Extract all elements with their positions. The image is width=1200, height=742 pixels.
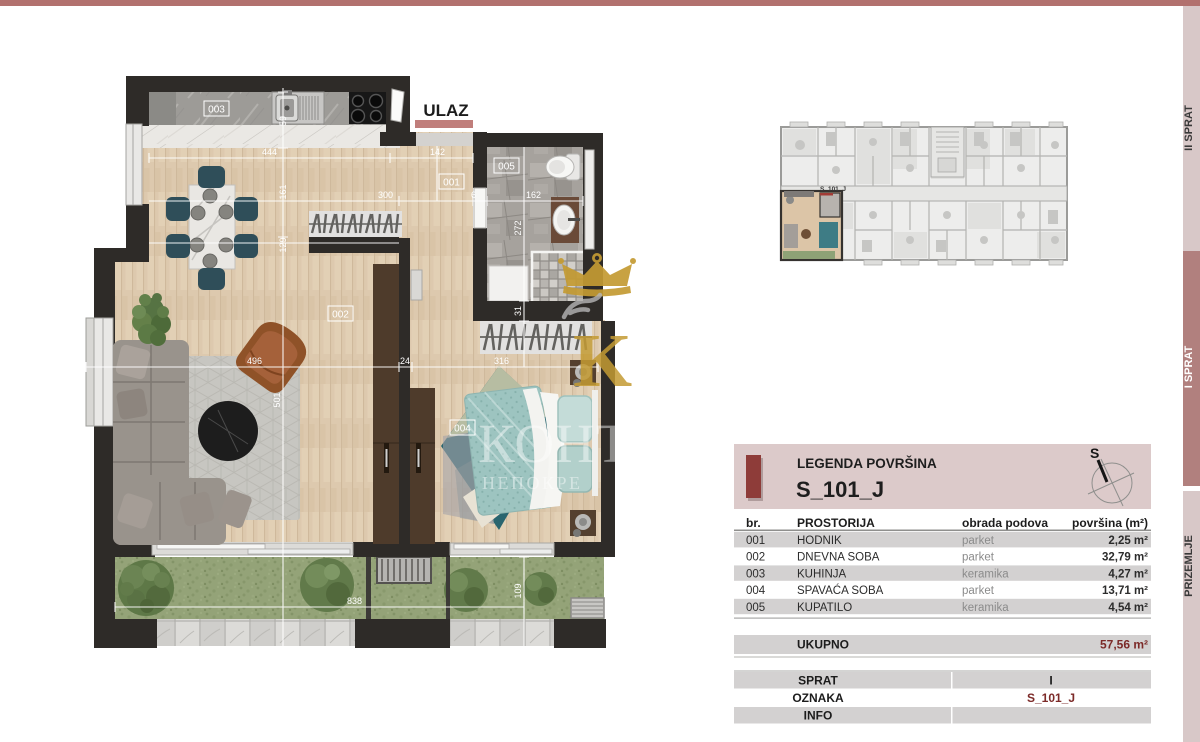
svg-text:parket: parket [962,535,995,547]
svg-text:I SPRAT: I SPRAT [1183,345,1195,388]
svg-text:31: 31 [513,306,523,316]
svg-text:142: 142 [430,147,445,157]
svg-text:002: 002 [746,552,765,564]
svg-text:I: I [1049,674,1052,688]
svg-text:13,71 m²: 13,71 m² [1102,585,1148,597]
svg-text:površina (m²): površina (m²) [1072,516,1148,530]
svg-text:6: 6 [471,190,476,200]
svg-text:272: 272 [513,220,523,235]
svg-text:HODNIK: HODNIK [797,535,842,547]
svg-text:001: 001 [746,535,765,547]
svg-text:005: 005 [746,602,765,614]
svg-text:S: S [1090,445,1099,461]
svg-text:162: 162 [526,190,541,200]
svg-text:КОНТ: КОНТ [478,413,630,474]
svg-text:496: 496 [247,356,262,366]
svg-text:4,54 m²: 4,54 m² [1108,602,1148,614]
svg-text:316: 316 [494,356,509,366]
svg-text:2,25 m²: 2,25 m² [1108,535,1148,547]
svg-text:keramika: keramika [962,568,1009,580]
svg-text:S_101_J: S_101_J [820,186,846,193]
svg-text:br.: br. [746,516,761,530]
svg-text:005: 005 [498,162,515,173]
svg-text:57,56 m²: 57,56 m² [1100,638,1148,652]
svg-text:INFO: INFO [804,709,833,723]
svg-text:K: K [573,319,632,403]
svg-text:002: 002 [332,310,349,321]
svg-text:KUPATILO: KUPATILO [797,602,852,614]
svg-text:32,79 m²: 32,79 m² [1102,552,1148,564]
svg-text:S_101_J: S_101_J [1027,691,1075,705]
svg-text:SPRAT: SPRAT [798,674,838,688]
svg-text:PRIZEMLJE: PRIZEMLJE [1183,535,1195,597]
svg-text:444: 444 [262,147,277,157]
svg-text:838: 838 [347,596,362,606]
svg-text:300: 300 [378,190,393,200]
svg-text:001: 001 [443,178,460,189]
svg-text:keramika: keramika [962,602,1009,614]
svg-text:109: 109 [513,583,523,598]
svg-text:59: 59 [278,116,288,126]
svg-text:004: 004 [746,585,766,597]
svg-text:S_101_J: S_101_J [796,477,884,502]
svg-text:003: 003 [208,105,225,116]
svg-text:SPAVAĆA SOBA: SPAVAĆA SOBA [797,584,884,597]
svg-text:KUHINJA: KUHINJA [797,568,847,580]
svg-text:004: 004 [454,424,471,435]
svg-text:501: 501 [272,392,282,407]
svg-text:161: 161 [278,184,288,199]
svg-text:parket: parket [962,585,995,597]
svg-text:obrada podova: obrada podova [962,516,1048,530]
svg-text:UKUPNO: UKUPNO [797,638,849,652]
svg-text:parket: parket [962,552,995,564]
svg-text:4,27 m²: 4,27 m² [1108,568,1148,580]
svg-text:DNEVNA SOBA: DNEVNA SOBA [797,552,880,564]
svg-text:ULAZ: ULAZ [423,101,468,120]
svg-text:НЕПОКРЕ: НЕПОКРЕ [482,473,583,493]
svg-text:PROSTORIJA: PROSTORIJA [797,516,875,530]
svg-text:II SPRAT: II SPRAT [1183,105,1195,151]
svg-text:129: 129 [278,237,288,252]
svg-text:24: 24 [400,356,410,366]
svg-text:LEGENDA POVRŠINA: LEGENDA POVRŠINA [797,456,937,471]
svg-text:003: 003 [746,568,765,580]
svg-text:OZNAKA: OZNAKA [792,691,844,705]
